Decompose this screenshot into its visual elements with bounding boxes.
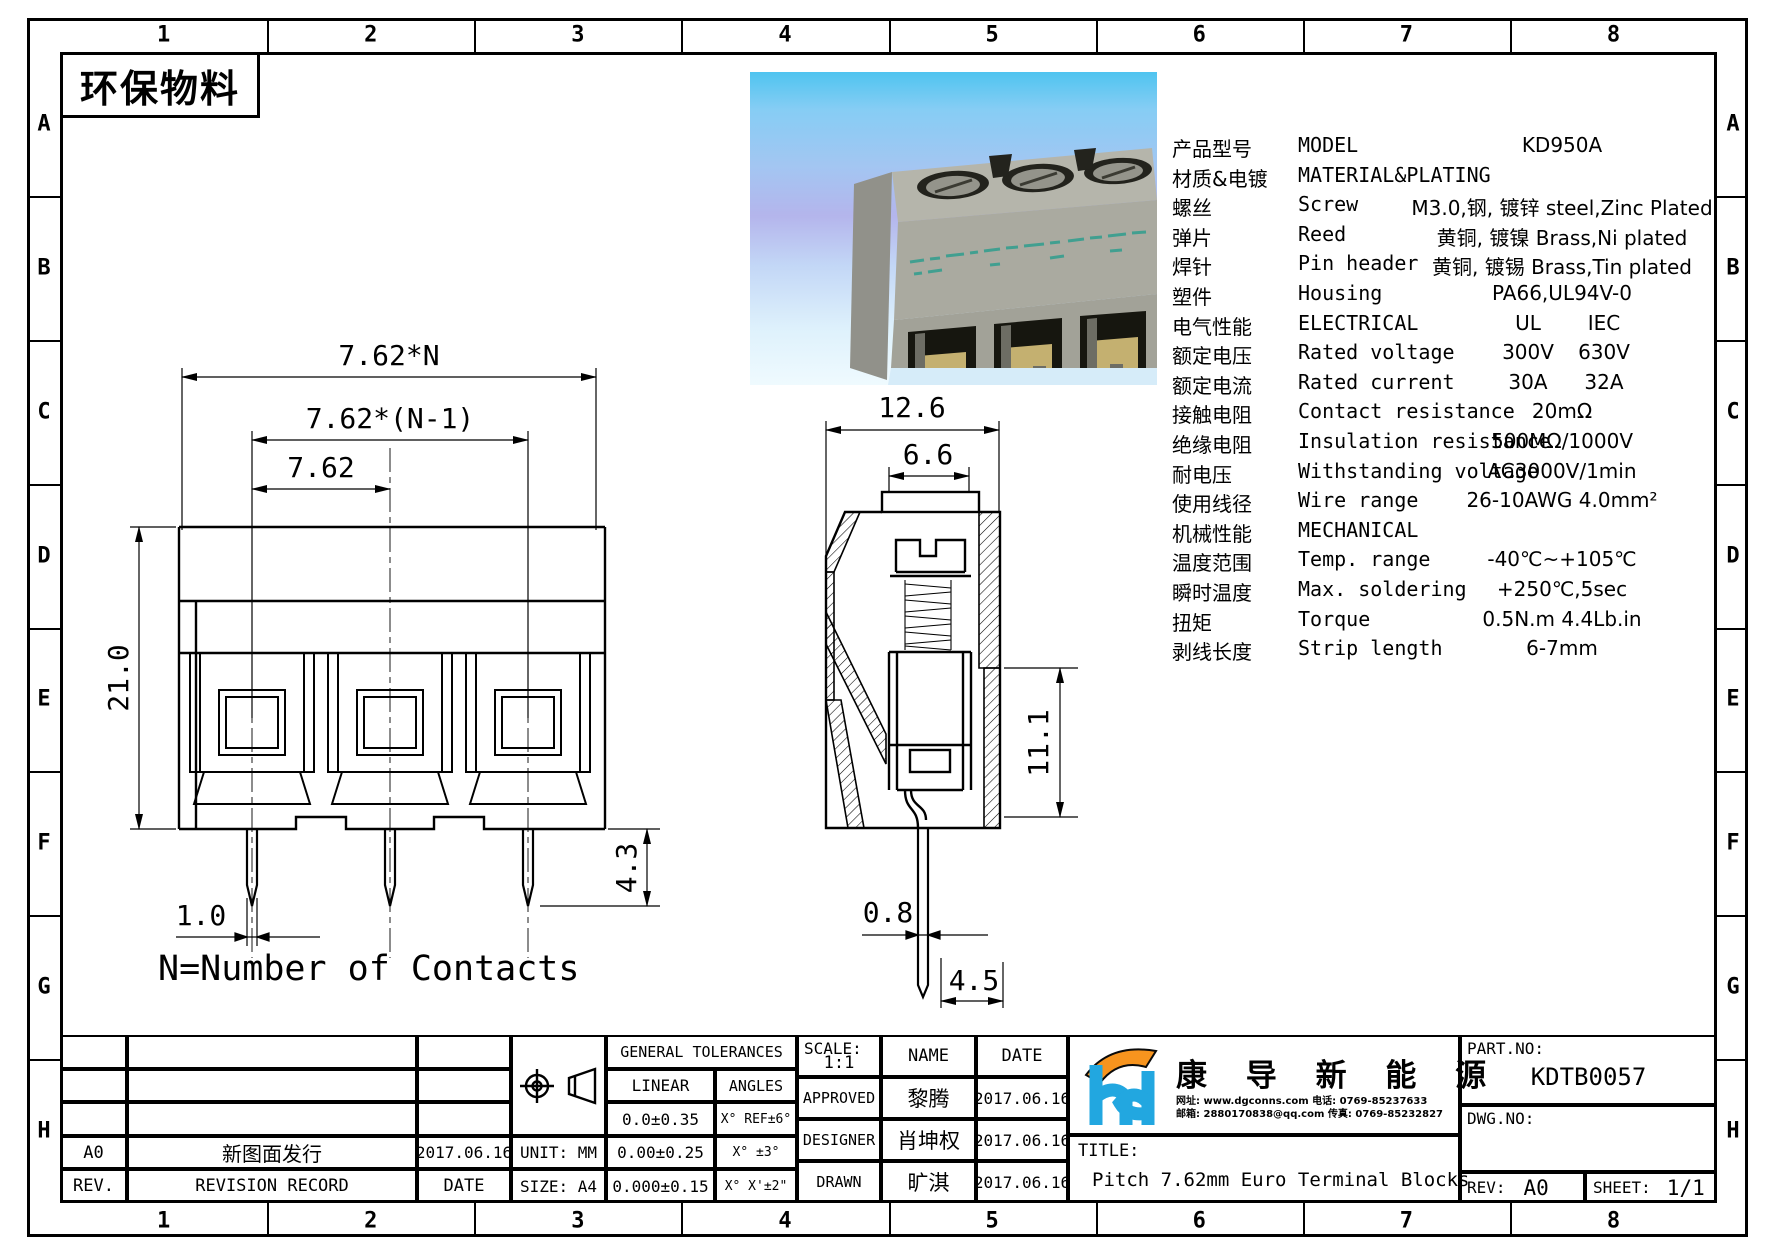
zone-col-top-4: 4	[778, 23, 791, 48]
rev-empty-8	[127, 1102, 417, 1136]
company-logo-block: 康 导 新 能 源 网址: www.dgconns.com 电话: 0769-8…	[1068, 1035, 1460, 1135]
spec-label-en: Torque	[1298, 607, 1370, 631]
zone-tick	[681, 1203, 683, 1237]
spec-value: -40℃~+105℃	[1487, 547, 1636, 571]
zone-row-left-G: G	[37, 975, 50, 1000]
rev-label: REV:	[1467, 1178, 1506, 1197]
rev-empty-2	[127, 1035, 417, 1069]
zone-row-left-F: F	[37, 831, 50, 856]
spec-value: 500MΩ/1000V	[1491, 429, 1633, 453]
spec-value: 黄铜, 镀镍 Brass,Ni plated	[1437, 222, 1688, 251]
dim-body-height: 11.1	[1022, 709, 1055, 776]
rev-value: A0	[1524, 1176, 1549, 1200]
zone-row-left-D: D	[37, 543, 50, 568]
zone-tick	[1717, 484, 1748, 486]
tol-angle-2: X° ±3°	[715, 1136, 797, 1169]
zone-tick	[1096, 18, 1098, 52]
zone-tick	[1717, 628, 1748, 630]
zone-col-bottom-4: 4	[778, 1209, 791, 1234]
spec-value-iec: 32A	[1584, 370, 1623, 394]
spec-label-cn: 使用线径	[1172, 488, 1252, 517]
spec-value: M3.0,钢, 镀锌 steel,Zinc Plated	[1411, 192, 1712, 221]
zone-col-top-2: 2	[364, 23, 377, 48]
zone-tick	[889, 1203, 891, 1237]
zone-row-right-G: G	[1726, 975, 1739, 1000]
dim-total-width: 7.62*N	[338, 339, 439, 372]
rev-header: REV.	[60, 1169, 127, 1203]
scale-label: SCALE:	[804, 1039, 862, 1058]
contacts-note: N=Number of Contacts	[158, 949, 579, 989]
spec-label-cn: 额定电压	[1172, 340, 1252, 369]
zone-tick	[27, 484, 60, 486]
rev-empty-5	[127, 1069, 417, 1102]
spec-label-cn: 瞬时温度	[1172, 577, 1252, 606]
dim-pitch: 7.62	[287, 451, 354, 484]
part-no-cell: PART.NO: KDTB0057	[1460, 1035, 1717, 1105]
zone-col-top-1: 1	[157, 23, 170, 48]
spec-value: 黄铜, 镀锡 Brass,Tin plated	[1432, 251, 1692, 280]
angles-header: ANGLES	[715, 1069, 797, 1102]
spec-value: 0.5N.m 4.4Lb.in	[1482, 607, 1641, 631]
approved-name: 黎腾	[881, 1077, 976, 1119]
spec-label-en: Housing	[1298, 281, 1382, 305]
spec-label-en: Temp. range	[1298, 547, 1430, 571]
zone-row-right-E: E	[1726, 687, 1739, 712]
side-section-view: 12.6 6.6 11.1 0.8 4.5	[808, 388, 1093, 1020]
part-no-value: KDTB0057	[1531, 1063, 1647, 1091]
zone-tick	[27, 1059, 60, 1061]
zone-row-left-B: B	[37, 255, 50, 280]
spec-value: 6-7mm	[1526, 636, 1598, 660]
zone-col-bottom-8: 8	[1607, 1209, 1620, 1234]
zone-tick	[1510, 18, 1512, 52]
zone-tick	[1717, 196, 1748, 198]
spec-label-cn: 绝缘电阻	[1172, 429, 1252, 458]
zone-tick	[27, 196, 60, 198]
zone-row-left-H: H	[37, 1119, 50, 1144]
title-label: TITLE:	[1078, 1141, 1139, 1161]
spec-value: PA66,UL94V-0	[1492, 281, 1632, 305]
sheet-cell: SHEET: 1/1	[1585, 1172, 1717, 1203]
spec-label-en: MECHANICAL	[1298, 518, 1418, 542]
zone-col-top-7: 7	[1400, 23, 1413, 48]
drawing-title: Pitch 7.62mm Euro Terminal Blocks	[1092, 1169, 1470, 1191]
spec-label-en: Pin header	[1298, 251, 1418, 275]
dim-n-minus-1: 7.62*(N-1)	[306, 402, 475, 435]
rev-a0-cell: A0	[60, 1136, 127, 1169]
spec-label-en: Rated voltage	[1298, 340, 1455, 364]
zone-row-right-D: D	[1726, 543, 1739, 568]
spec-label-cn: 扭矩	[1172, 607, 1212, 636]
zone-row-right-C: C	[1726, 399, 1739, 424]
zone-row-left-E: E	[37, 687, 50, 712]
tol-linear-1: 0.0±0.35	[606, 1102, 715, 1136]
spec-label-en: Contact resistance	[1298, 399, 1515, 423]
rev-empty-6	[417, 1069, 511, 1102]
projection-symbol-cell	[511, 1035, 606, 1136]
product-photo	[750, 72, 1157, 385]
zone-col-bottom-6: 6	[1193, 1209, 1206, 1234]
dwg-no-cell: DWG.NO:	[1460, 1105, 1717, 1172]
zone-tick	[1510, 1203, 1512, 1237]
rev-empty-9	[417, 1102, 511, 1136]
zone-tick	[1717, 771, 1748, 773]
spec-value-iec: IEC	[1588, 311, 1621, 335]
spec-label-cn: 螺丝	[1172, 192, 1212, 221]
tol-linear-3: 0.000±0.15	[606, 1169, 715, 1203]
zone-row-right-B: B	[1726, 255, 1739, 280]
tol-angle-3: X° X'±2"	[715, 1169, 797, 1203]
sheet-label: SHEET:	[1593, 1178, 1651, 1197]
tol-linear-2: 0.00±0.25	[606, 1136, 715, 1169]
dwg-no-label: DWG.NO:	[1467, 1109, 1534, 1128]
linear-header: LINEAR	[606, 1069, 715, 1102]
scale-cell: SCALE: 1:1	[797, 1035, 881, 1077]
spec-label-en: Rated current	[1298, 370, 1455, 394]
rev-date-cell: 2017.06.16	[417, 1136, 511, 1169]
rev-empty-3	[417, 1035, 511, 1069]
zone-tick	[27, 628, 60, 630]
revision-record-header: REVISION RECORD	[127, 1169, 417, 1203]
dim-opening: 6.6	[903, 438, 954, 471]
spec-label-cn: 剥线长度	[1172, 636, 1252, 665]
zone-tick	[267, 1203, 269, 1237]
spec-label-cn: 机械性能	[1172, 518, 1252, 547]
sheet-value: 1/1	[1667, 1176, 1705, 1200]
dim-pin-offset: 4.5	[949, 964, 1000, 997]
spec-label-en: Wire range	[1298, 488, 1418, 512]
zone-tick	[474, 1203, 476, 1237]
spec-value-ul: 30A	[1508, 370, 1547, 394]
zone-col-bottom-3: 3	[571, 1209, 584, 1234]
spec-label-cn: 弹片	[1172, 222, 1212, 251]
zone-col-top-3: 3	[571, 23, 584, 48]
company-name: 康 导 新 能 源	[1176, 1050, 1500, 1095]
spec-label-cn: 耐电压	[1172, 459, 1232, 488]
eco-material-stamp: 环保物料	[60, 52, 260, 118]
dim-pin-thickness: 0.8	[863, 896, 914, 929]
unit-cell: UNIT: MM	[511, 1136, 606, 1169]
spec-value: AC3000V/1min	[1487, 459, 1636, 483]
spec-label-en: MATERIAL&PLATING	[1298, 163, 1491, 187]
spec-value: 20mΩ	[1532, 399, 1592, 423]
spec-label-cn: 产品型号	[1172, 133, 1252, 162]
spec-value-iec: 630V	[1578, 340, 1630, 364]
rev-empty-4	[60, 1069, 127, 1102]
zone-tick	[27, 771, 60, 773]
drawing-sheet: 1122334455667788AABBCCDDEEFFGGHH 环保物料	[0, 0, 1778, 1257]
company-logo-icon	[1076, 1041, 1168, 1129]
front-view-drawing: 7.62*N 7.62*(N-1) 7.62 21.0 1.0 4.3 N=Nu…	[105, 335, 680, 990]
spec-label-en: Strip length	[1298, 636, 1443, 660]
general-tolerances-header: GENERAL TOLERANCES	[606, 1035, 797, 1069]
zone-tick	[681, 18, 683, 52]
zone-row-right-H: H	[1726, 1119, 1739, 1144]
zone-tick	[889, 18, 891, 52]
zone-tick	[1717, 340, 1748, 342]
spec-label-cn: 塑件	[1172, 281, 1212, 310]
spec-label-cn: 接触电阻	[1172, 399, 1252, 428]
rev-cell: REV: A0	[1460, 1172, 1585, 1203]
zone-col-top-5: 5	[985, 23, 998, 48]
zone-row-left-C: C	[37, 399, 50, 424]
zone-tick	[267, 18, 269, 52]
zone-tick	[27, 340, 60, 342]
eco-material-label: 环保物料	[80, 58, 240, 113]
size-cell: SIZE: A4	[511, 1169, 606, 1203]
dim-height: 21.0	[105, 644, 135, 711]
dim-pin-length: 4.3	[610, 843, 643, 894]
revision-date-header: DATE	[417, 1169, 511, 1203]
rev-empty-1	[60, 1035, 127, 1069]
spec-value: 26-10AWG 4.0mm²	[1466, 488, 1657, 512]
designer-name: 肖坤权	[881, 1119, 976, 1161]
tol-angle-1: X° REF±6°	[715, 1102, 797, 1136]
zone-tick	[1096, 1203, 1098, 1237]
spec-value-ul: UL	[1515, 311, 1541, 335]
part-no-label: PART.NO:	[1467, 1039, 1544, 1058]
spec-label-cn: 焊针	[1172, 251, 1212, 280]
zone-row-left-A: A	[37, 111, 50, 136]
spec-label-en: Screw	[1298, 192, 1358, 216]
drawn-role: DRAWN	[797, 1161, 881, 1203]
approved-role: APPROVED	[797, 1077, 881, 1119]
designer-role: DESIGNER	[797, 1119, 881, 1161]
dim-pin-width: 1.0	[176, 899, 227, 932]
spec-label-en: Reed	[1298, 222, 1346, 246]
zone-row-right-A: A	[1726, 111, 1739, 136]
zone-col-bottom-1: 1	[157, 1209, 170, 1234]
spec-value: +250℃,5sec	[1497, 577, 1627, 601]
spec-value: KD950A	[1522, 133, 1602, 157]
title-cell: TITLE: Pitch 7.62mm Euro Terminal Blocks	[1068, 1135, 1460, 1203]
zone-tick	[1717, 915, 1748, 917]
spec-label-en: Max. soldering	[1298, 577, 1467, 601]
date-header: DATE	[976, 1035, 1068, 1077]
zone-tick	[1303, 1203, 1305, 1237]
dim-depth: 12.6	[878, 391, 945, 424]
designer-date: 2017.06.16	[976, 1119, 1068, 1161]
drawn-date: 2017.06.16	[976, 1161, 1068, 1203]
zone-tick	[474, 18, 476, 52]
spec-label-cn: 电气性能	[1172, 311, 1252, 340]
spec-label-en: ELECTRICAL	[1298, 311, 1418, 335]
drawn-name: 旷淇	[881, 1161, 976, 1203]
spec-label-cn: 温度范围	[1172, 547, 1252, 576]
company-contact-web: 网址: www.dgconns.com 电话: 0769-85237633	[1176, 1095, 1500, 1108]
spec-label-en: MODEL	[1298, 133, 1358, 157]
name-header: NAME	[881, 1035, 976, 1077]
zone-row-right-F: F	[1726, 831, 1739, 856]
zone-tick	[1303, 18, 1305, 52]
zone-col-bottom-5: 5	[985, 1209, 998, 1234]
third-angle-projection-icon	[517, 1065, 601, 1107]
spec-label-cn: 材质&电镀	[1172, 163, 1268, 192]
rev-empty-7	[60, 1102, 127, 1136]
spec-value-ul: 300V	[1502, 340, 1554, 364]
company-contact-mail: 邮箱: 2880170838@qq.com 传真: 0769-85232827	[1176, 1108, 1500, 1121]
zone-col-bottom-2: 2	[364, 1209, 377, 1234]
rev-record-cell: 新图面发行	[127, 1136, 417, 1169]
zone-col-bottom-7: 7	[1400, 1209, 1413, 1234]
zone-col-top-8: 8	[1607, 23, 1620, 48]
zone-col-top-6: 6	[1193, 23, 1206, 48]
zone-tick	[27, 915, 60, 917]
spec-label-cn: 额定电流	[1172, 370, 1252, 399]
zone-tick	[1717, 1059, 1748, 1061]
approved-date: 2017.06.16	[976, 1077, 1068, 1119]
